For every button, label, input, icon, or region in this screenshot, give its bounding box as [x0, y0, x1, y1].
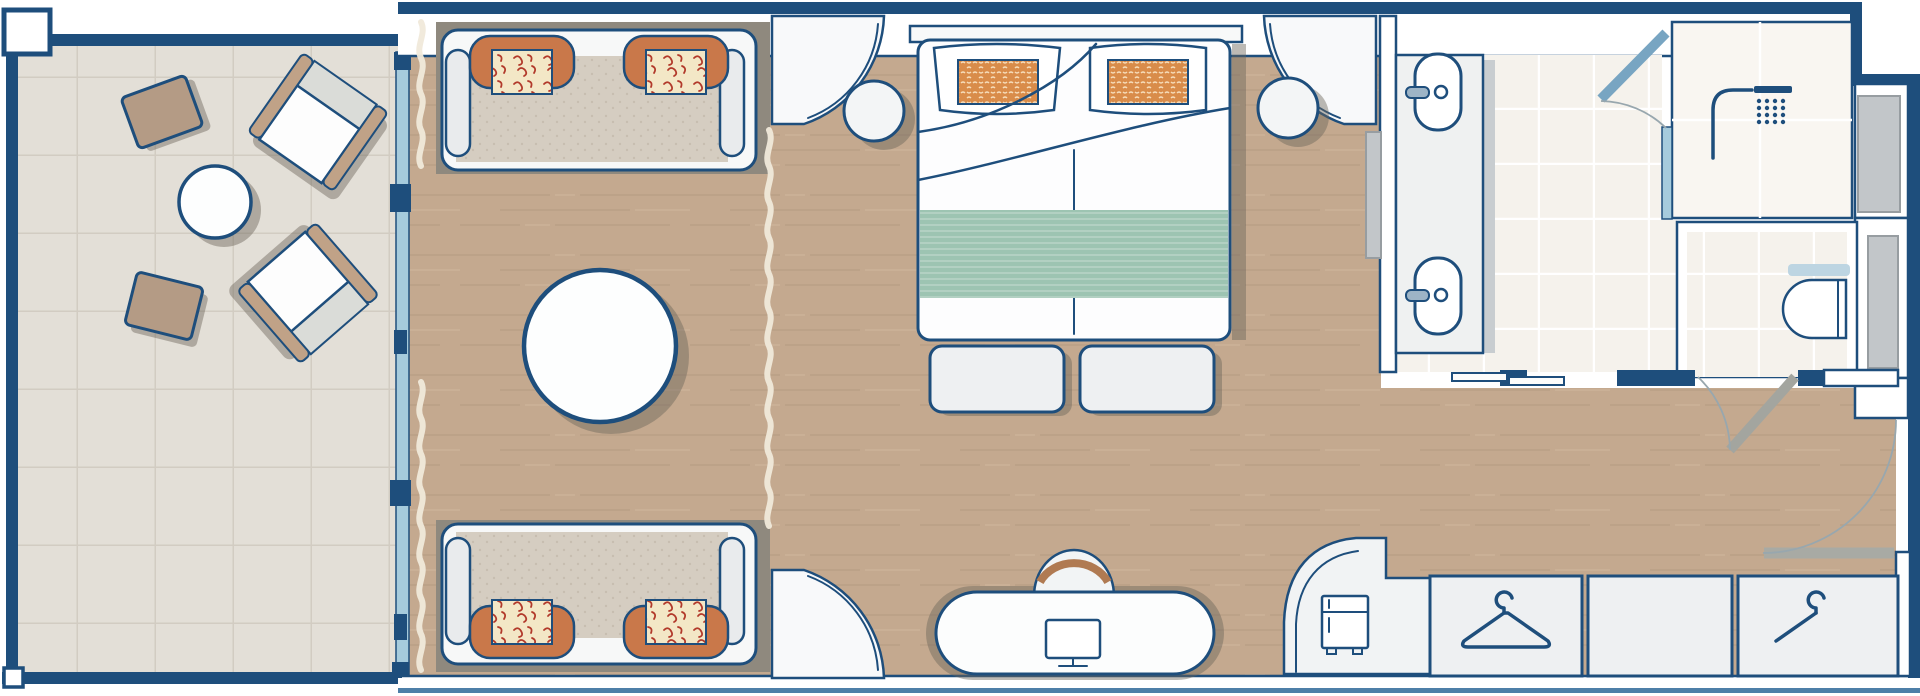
wall-top-edge: [398, 2, 1860, 14]
sofa-cushion-patterned: [646, 600, 706, 644]
sliding-door-panel-1: [1452, 373, 1507, 381]
faucet-icon: [1406, 87, 1429, 98]
bathroom: [1366, 16, 1898, 450]
floor-plan-page: [0, 0, 1920, 696]
divider-curtain: [767, 130, 770, 526]
wall-stub-3: [1798, 370, 1824, 386]
toilet: [1783, 280, 1846, 338]
sofa-cushion-patterned: [646, 50, 706, 94]
vanity-counter-shadow: [1483, 60, 1495, 353]
bed-bench-right: [1080, 346, 1214, 412]
glass-panel: [396, 52, 409, 676]
wall-shelf-panel-lower: [1868, 236, 1898, 368]
balcony: [2, 10, 409, 687]
closet-section-2: [1588, 576, 1732, 676]
round-ottoman-table: [524, 270, 676, 422]
sliding-door-panel-2: [1509, 377, 1564, 385]
bed-bench-left: [930, 346, 1064, 412]
window-curtain-bottom: [419, 382, 422, 670]
monitor-icon: [1046, 620, 1100, 666]
balcony-wall-top: [2, 34, 402, 46]
balcony-corner-post-bottom: [4, 668, 23, 687]
nightstand-left: [844, 81, 904, 141]
suite-floor-plan: [0, 0, 1920, 696]
sofa-armrest: [446, 50, 470, 156]
faucet-icon: [1406, 290, 1429, 301]
bedroom-wall-panel-tv: [1366, 132, 1381, 258]
wall-bottom-accent: [398, 688, 1920, 693]
balcony-wall-left: [6, 34, 18, 684]
sofa-cushion-patterned: [492, 50, 552, 94]
bed-shadow: [1232, 44, 1246, 340]
window-curtain-top: [419, 22, 422, 166]
drain-icon: [1435, 86, 1447, 98]
wall-stub-2: [1617, 370, 1695, 386]
wall-bottom-band: [398, 678, 1920, 696]
shower-glass-wall: [1662, 127, 1672, 219]
sofa-armrest: [446, 538, 470, 644]
wall-bedroom-bathroom: [1380, 16, 1396, 372]
balcony-wall-bottom: [2, 672, 402, 684]
sofa-bottom: [436, 520, 770, 672]
drain-icon: [1435, 289, 1447, 301]
nightstand-right: [1258, 78, 1318, 138]
sofa-cushion-patterned: [492, 600, 552, 644]
wall-entry-top: [1824, 370, 1898, 386]
bed-teal-runner: [920, 210, 1228, 298]
balcony-corner-post-top: [4, 10, 50, 54]
bathroom-tile-strip: [1662, 218, 1677, 372]
balcony-round-table: [179, 166, 251, 238]
pillow-cushion-orange: [1108, 60, 1188, 104]
wall-shelf-panel-upper: [1858, 96, 1900, 212]
mini-fridge-icon: [1322, 596, 1368, 654]
toilet-shelf: [1788, 264, 1850, 276]
sofa-top: [436, 22, 770, 174]
